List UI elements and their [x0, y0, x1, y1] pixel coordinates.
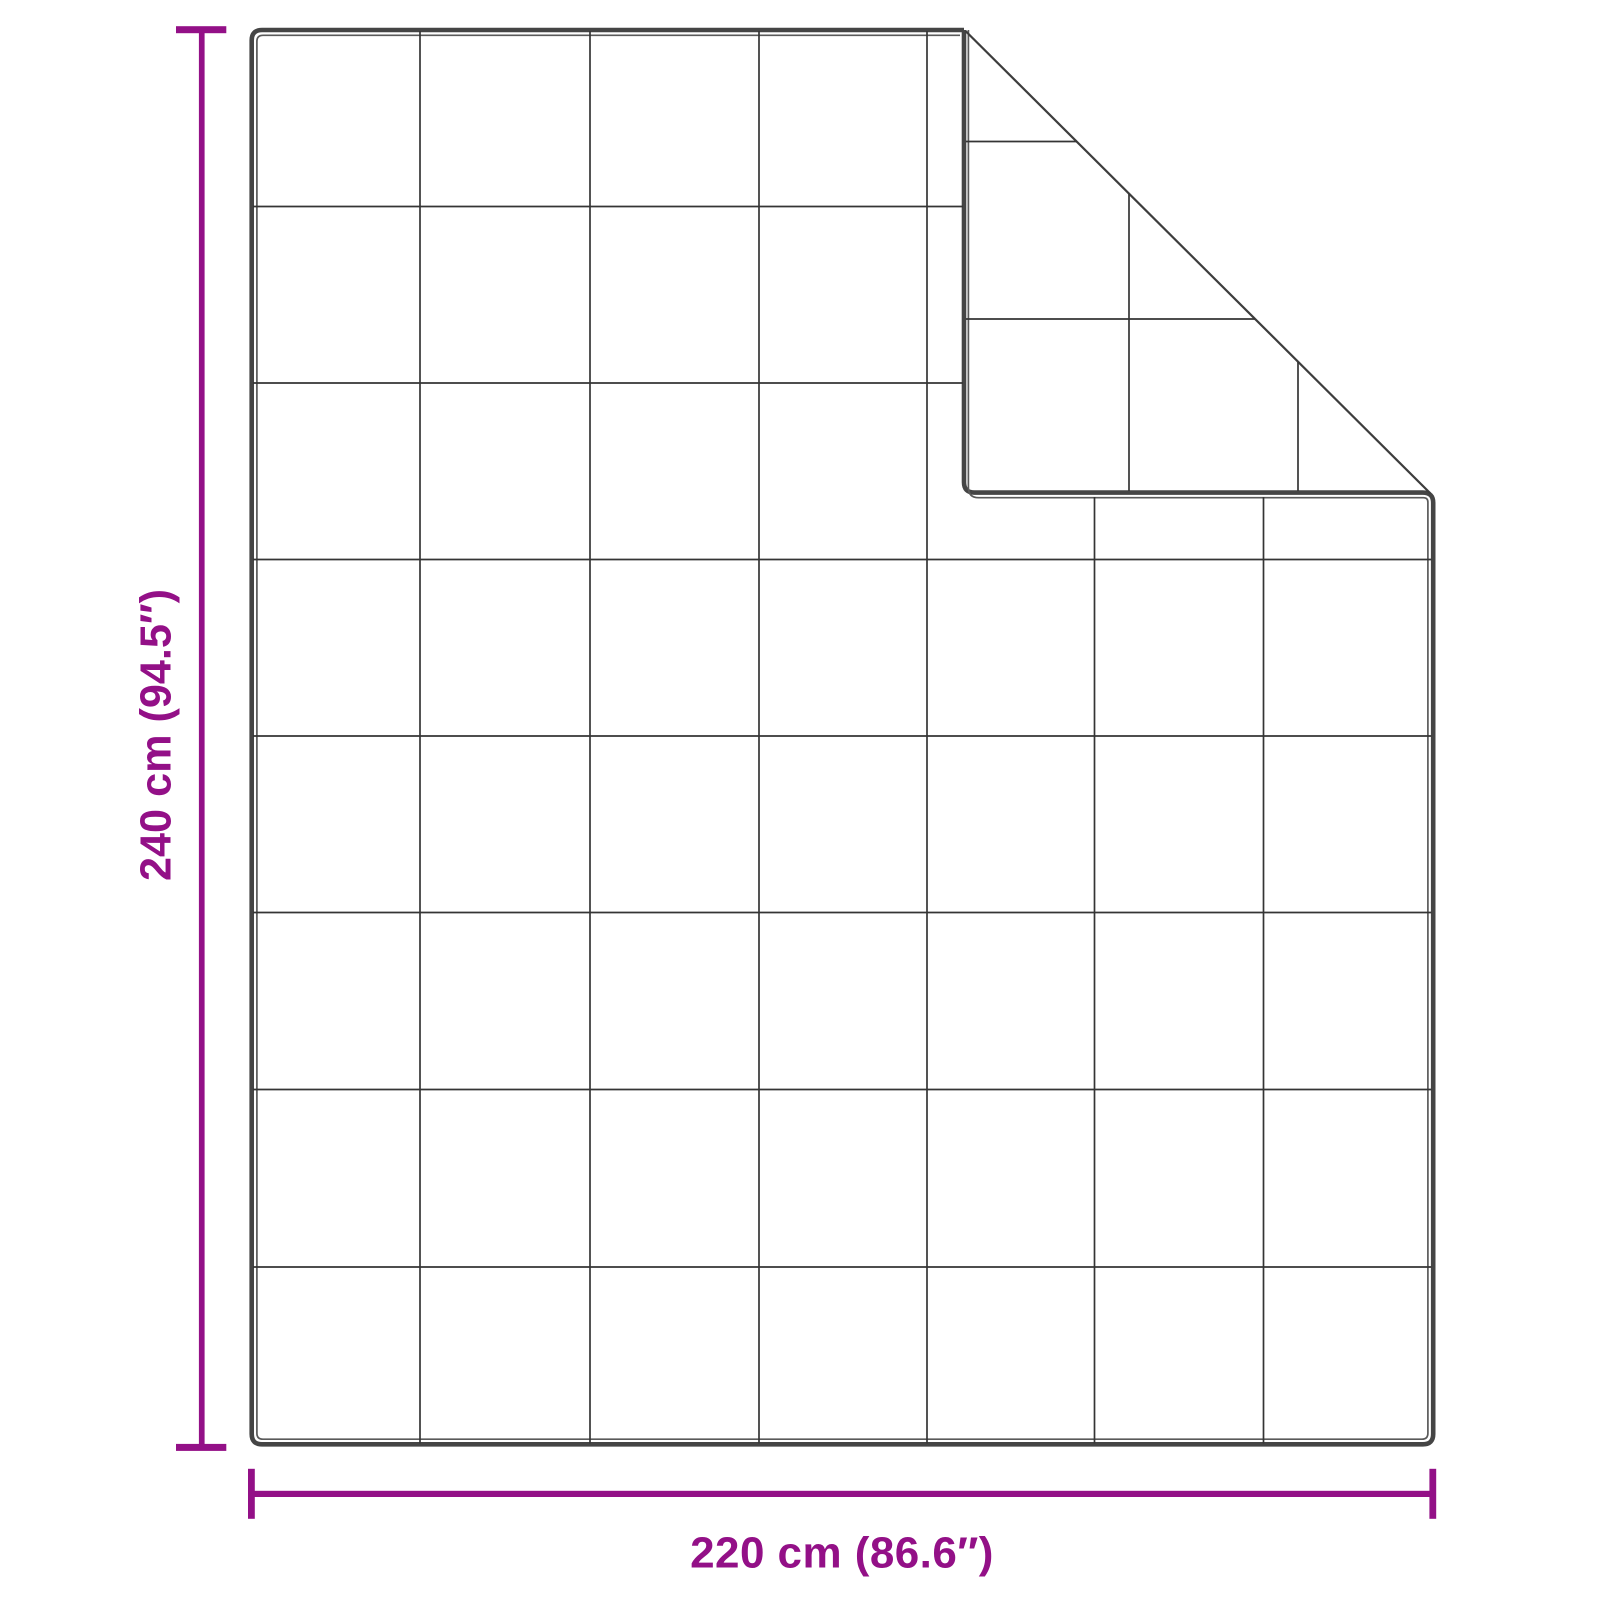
svg-text:220 cm (86.6″): 220 cm (86.6″)	[690, 1529, 994, 1578]
svg-text:240 cm (94.5″): 240 cm (94.5″)	[133, 589, 181, 881]
